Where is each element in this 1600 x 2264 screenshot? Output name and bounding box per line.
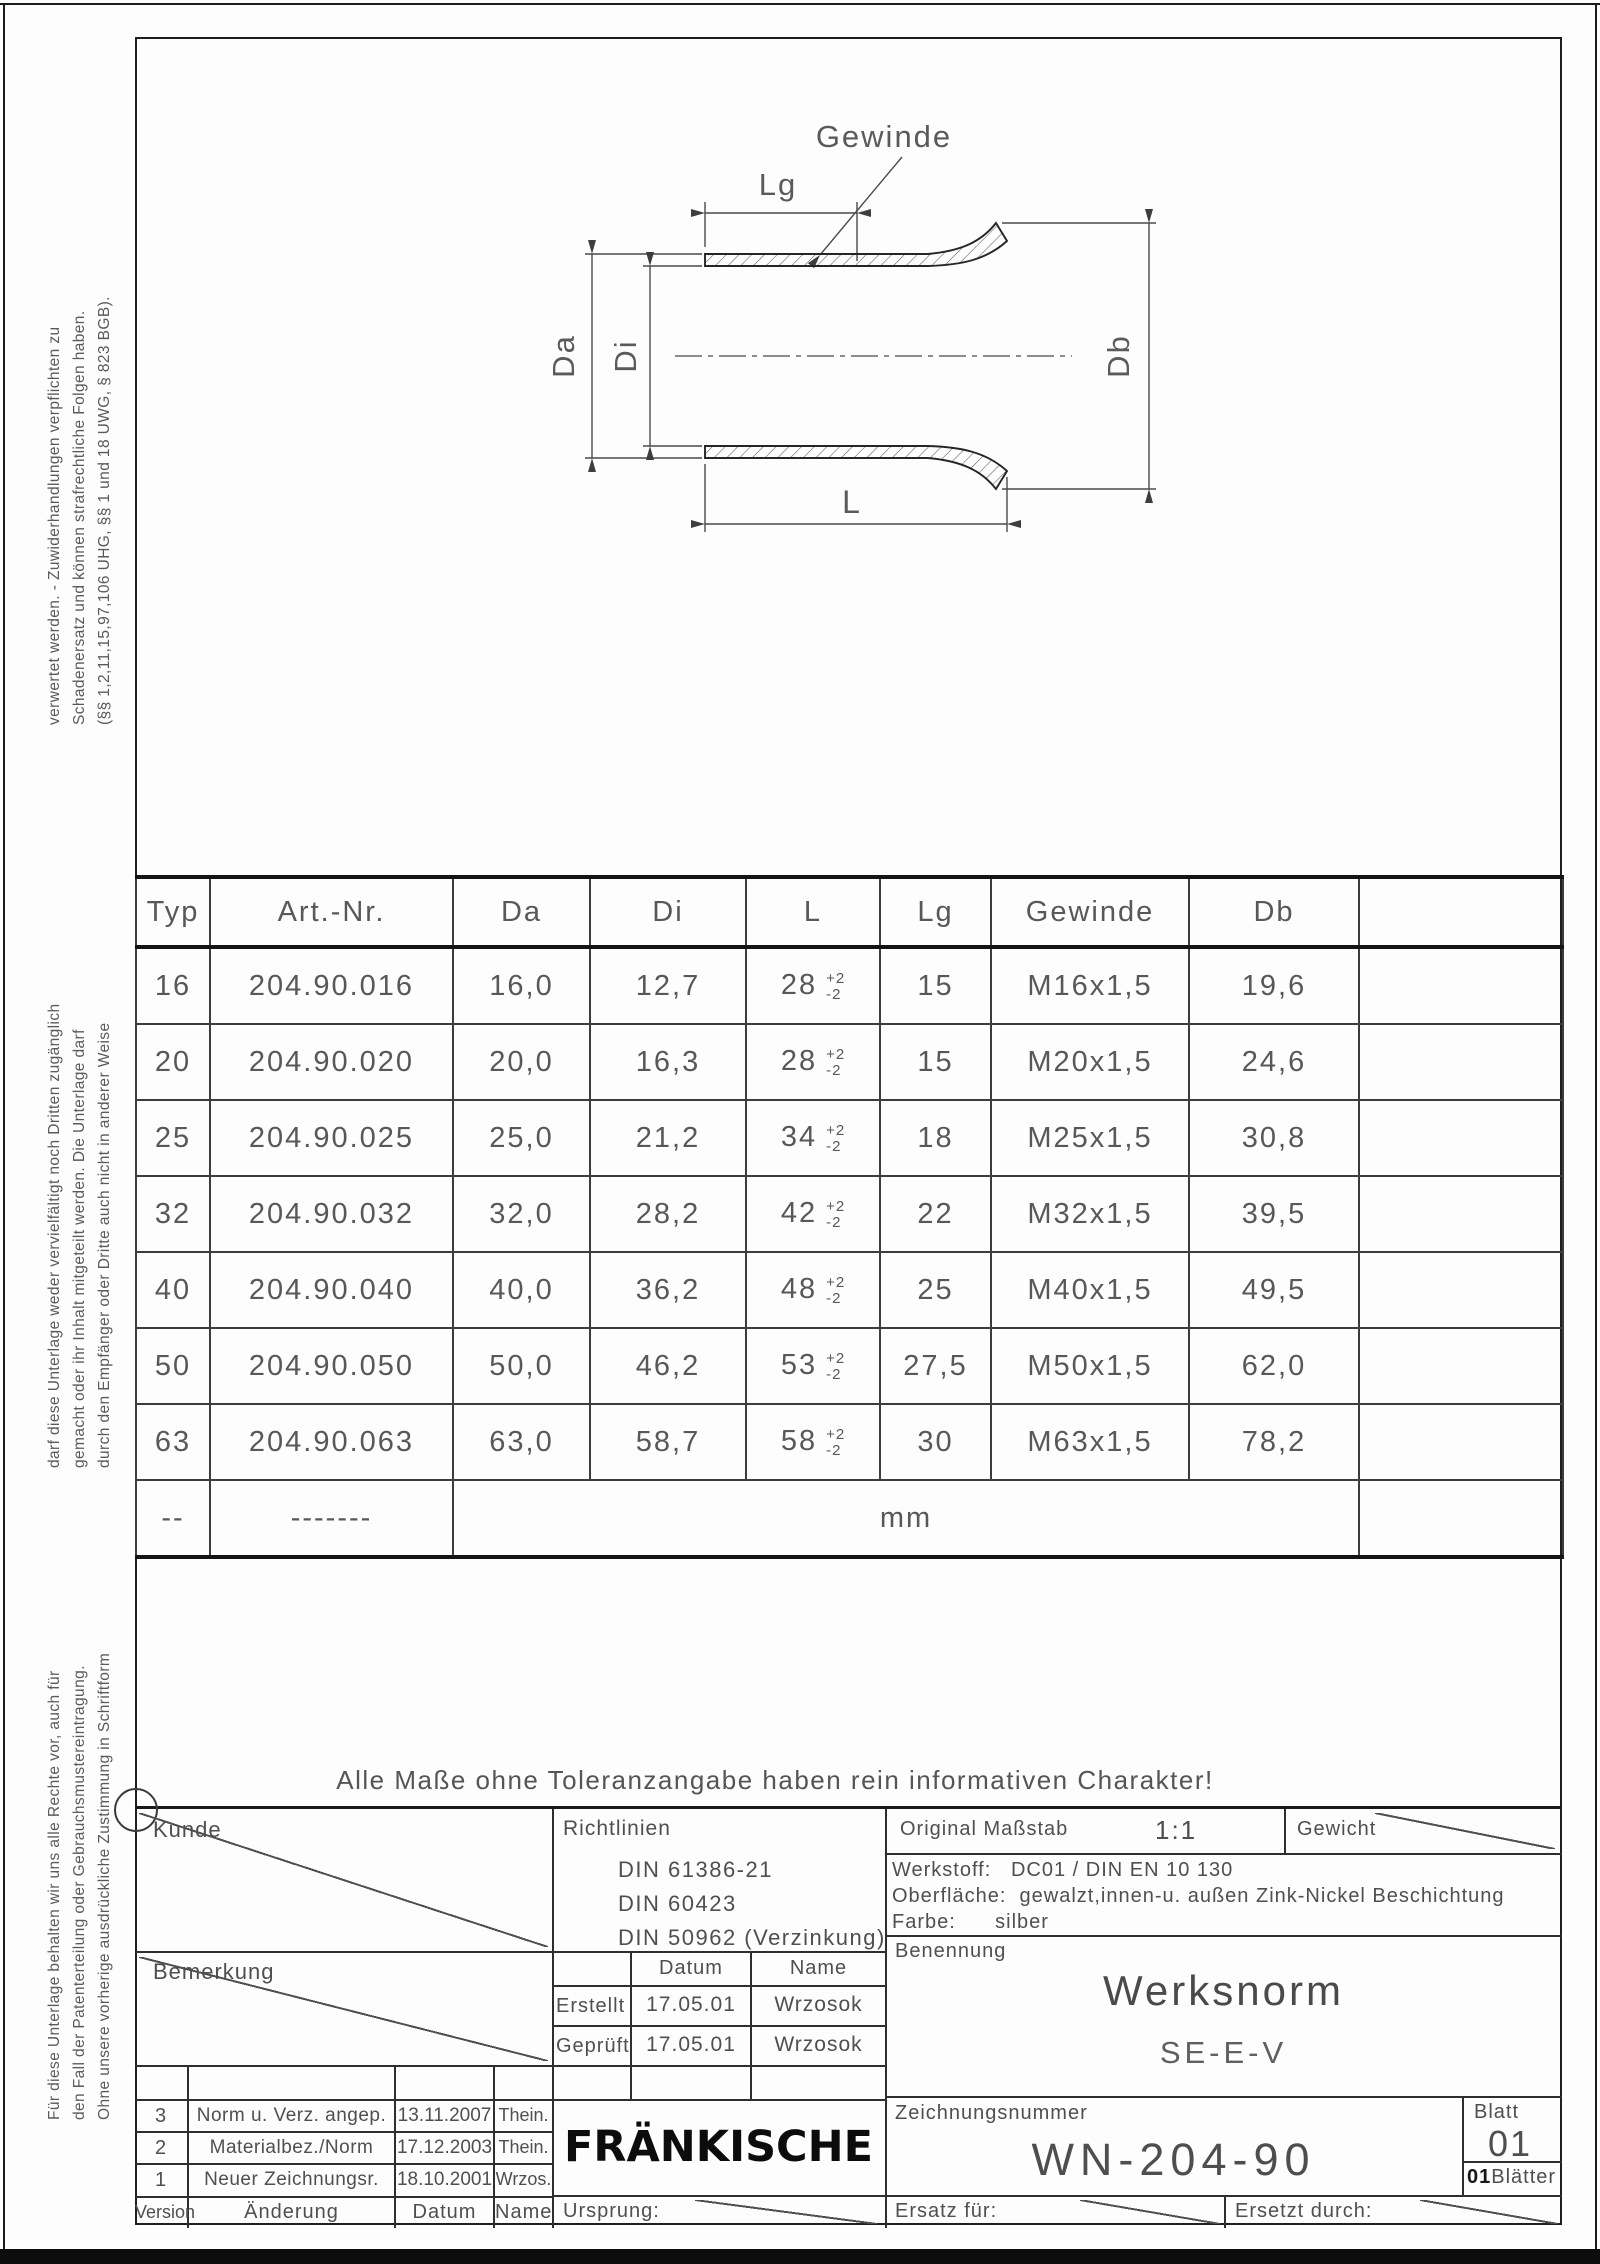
ursprung-void-diagonal	[695, 2200, 877, 2224]
fraenkische-logo: FRÄNKISCHE	[552, 2099, 885, 2195]
ersatz-void-diagonal	[1080, 2200, 1220, 2224]
zeichnungsnummer-label: Zeichnungsnummer	[895, 2102, 1088, 2125]
tolerance-notice: Alle Maße ohne Toleranzangabe haben rein…	[300, 1765, 1250, 1796]
page-border-bottom	[0, 2249, 1600, 2264]
spec-cell: 39,5	[1189, 1176, 1359, 1252]
tolerance-stack: +2-2	[826, 1275, 845, 1307]
tolerance-stack: +2-2	[826, 971, 845, 1003]
spec-cell	[1359, 947, 1563, 1024]
farbe-label: Farbe:	[892, 1911, 956, 1933]
blaetter-label: Blätter	[1491, 2166, 1556, 2188]
spec-cell: M63x1,5	[991, 1404, 1189, 1480]
erstellt-name: Wrzosok	[752, 1993, 885, 2017]
version-row-date: 18.10.2001	[396, 2169, 493, 2191]
spec-column-header: Di	[590, 877, 746, 947]
spec-cell: M20x1,5	[991, 1024, 1189, 1100]
spec-cell: 204.90.032	[210, 1176, 453, 1252]
approval-name-header: Name	[752, 1957, 885, 1980]
richtlinien-label: Richtlinien	[563, 1817, 671, 1841]
tolerance-stack: +2-2	[826, 1427, 845, 1459]
bemerkung-label: Bemerkung	[153, 1959, 275, 1985]
spec-cell	[1359, 1252, 1563, 1328]
ersetzt-void-diagonal	[1420, 2200, 1558, 2224]
di-label: Di	[608, 339, 643, 372]
benennung-title: Werksnorm	[885, 1967, 1562, 2015]
l-label: L	[842, 484, 862, 520]
geprueft-datum: 17.05.01	[632, 2033, 750, 2057]
spec-cell: 16,0	[453, 947, 590, 1024]
spec-unit-row: ---------mm	[136, 1480, 1563, 1557]
spec-row: 16204.90.01616,012,728+2-215M16x1,519,6	[136, 947, 1563, 1024]
spec-cell: 28+2-2	[746, 1024, 880, 1100]
masstab-label: Original Maßstab	[900, 1818, 1068, 1841]
spec-cell: 204.90.016	[210, 947, 453, 1024]
spec-cell: 58+2-2	[746, 1404, 880, 1480]
werkstoff-row: Werkstoff: DC01 / DIN EN 10 130	[892, 1859, 1233, 1882]
spec-cell: M50x1,5	[991, 1328, 1189, 1404]
spec-cell: 34+2-2	[746, 1100, 880, 1176]
spec-cell: 30,8	[1189, 1100, 1359, 1176]
benennung-subtitle: SE-E-V	[885, 2035, 1562, 2071]
spec-cell: M32x1,5	[991, 1176, 1189, 1252]
dimension-table-body: 16204.90.01616,012,728+2-215M16x1,519,62…	[136, 947, 1563, 1557]
spec-cell: 63,0	[453, 1404, 590, 1480]
richtlinie-din: DIN 60423	[618, 1887, 886, 1921]
farbe-value: silber	[995, 1911, 1049, 1933]
legal-line: gemacht oder ihr Inhalt mitgeteilt werde…	[67, 856, 92, 1468]
dimension-table-header: TypArt.-Nr.DaDiLLgGewindeDb	[136, 877, 1563, 947]
spec-cell: 32	[136, 1176, 210, 1252]
spec-row: 25204.90.02525,021,234+2-218M25x1,530,8	[136, 1100, 1563, 1176]
lg-label: Lg	[759, 167, 797, 202]
spec-cell	[1359, 1176, 1563, 1252]
name-header: Name	[495, 2201, 552, 2224]
part-wall-bottom	[705, 446, 1007, 489]
version-row-number: 2	[135, 2137, 187, 2160]
page-border-top	[0, 3, 1600, 5]
legal-text-block-bottom: Für diese Unterlage behalten wir uns all…	[42, 1494, 122, 2120]
ursprung-label: Ursprung:	[563, 2200, 660, 2223]
part-cross-section-drawing: Gewinde Lg Da Di Db L	[440, 95, 1250, 585]
version-row-change: Neuer Zeichnungsr.	[189, 2169, 394, 2191]
version-row-date: 17.12.2003	[396, 2137, 493, 2159]
gewicht-label: Gewicht	[1297, 1818, 1376, 1841]
ersetzt-label: Ersetzt durch:	[1235, 2200, 1372, 2223]
spec-cell: 204.90.063	[210, 1404, 453, 1480]
geprueft-label: Geprüft	[556, 2035, 630, 2058]
approval-datum-header: Datum	[632, 1957, 750, 1980]
spec-cell: 28+2-2	[746, 947, 880, 1024]
spec-cell: 204.90.040	[210, 1252, 453, 1328]
spec-cell: 50	[136, 1328, 210, 1404]
version-header: Version	[135, 2202, 187, 2223]
tolerance-stack: +2-2	[826, 1199, 845, 1231]
version-row-date: 13.11.2007	[396, 2105, 493, 2127]
blaetter-row: 01Blätter	[1467, 2166, 1556, 2189]
spec-cell: 63	[136, 1404, 210, 1480]
dimension-lines	[585, 157, 1156, 532]
spec-cell: 25	[136, 1100, 210, 1176]
spec-cell: 15	[880, 1024, 991, 1100]
spec-row: 32204.90.03232,028,242+2-222M32x1,539,5	[136, 1176, 1563, 1252]
spec-row: 63204.90.06363,058,758+2-230M63x1,578,2	[136, 1404, 1563, 1480]
geprueft-name: Wrzosok	[752, 2033, 885, 2057]
spec-cell: 16	[136, 947, 210, 1024]
spec-cell: 27,5	[880, 1328, 991, 1404]
blatt-value: 01	[1462, 2123, 1558, 2165]
richtlinien-list: DIN 61386-21 DIN 60423 DIN 50962 (Verzin…	[618, 1853, 886, 1955]
richtlinie-din: DIN 50962 (Verzinkung)	[618, 1921, 886, 1955]
title-block: Kunde Richtlinien DIN 61386-21 DIN 60423…	[135, 1806, 1562, 2225]
gewinde-leader-line	[820, 157, 902, 255]
spec-cell: 19,6	[1189, 947, 1359, 1024]
legal-line: den Fall der Patenterteilung oder Gebrau…	[67, 1494, 92, 2120]
farbe-row: Farbe: silber	[892, 1911, 1049, 1934]
spec-column-header: Da	[453, 877, 590, 947]
spec-cell: M16x1,5	[991, 947, 1189, 1024]
spec-cell: 20,0	[453, 1024, 590, 1100]
aenderung-header: Änderung	[189, 2201, 394, 2224]
spec-column-header: Db	[1189, 877, 1359, 947]
spec-cell: 12,7	[590, 947, 746, 1024]
spec-cell: 204.90.050	[210, 1328, 453, 1404]
legal-line: durch den Empfänger oder Dritte auch nic…	[92, 856, 117, 1468]
legal-line: verwertet werden. - Zuwiderhandlungen ve…	[42, 228, 67, 725]
spec-column-header: L	[746, 877, 880, 947]
spec-column-header: Gewinde	[991, 877, 1189, 947]
spec-column-header: Lg	[880, 877, 991, 947]
spec-cell: 36,2	[590, 1252, 746, 1328]
spec-cell: M25x1,5	[991, 1100, 1189, 1176]
legal-line: (§§ 1,2,11,15,97,106 UHG, §§ 1 und 18 UW…	[92, 228, 117, 725]
legal-text-block-middle: darf diese Unterlage weder vervielfältig…	[42, 856, 122, 1468]
gewinde-label: Gewinde	[816, 119, 952, 154]
spec-cell: 20	[136, 1024, 210, 1100]
spec-cell: 53+2-2	[746, 1328, 880, 1404]
version-row-name: Thein.	[495, 2105, 552, 2126]
werkstoff-label: Werkstoff:	[892, 1859, 991, 1881]
legal-text-block-top: verwertet werden. - Zuwiderhandlungen ve…	[42, 228, 122, 725]
spec-column-header: Typ	[136, 877, 210, 947]
spec-cell: 204.90.025	[210, 1100, 453, 1176]
spec-cell: -------	[210, 1480, 453, 1557]
spec-unit-cell: mm	[453, 1480, 1359, 1557]
spec-cell: 50,0	[453, 1328, 590, 1404]
legal-line: Für diese Unterlage behalten wir uns all…	[42, 1494, 67, 2120]
spec-cell: 22	[880, 1176, 991, 1252]
kunde-label: Kunde	[153, 1817, 222, 1843]
blatt-label: Blatt	[1474, 2101, 1519, 2124]
dimension-table: TypArt.-Nr.DaDiLLgGewindeDb 16204.90.016…	[135, 875, 1564, 1559]
spec-cell: 46,2	[590, 1328, 746, 1404]
spec-cell: 40	[136, 1252, 210, 1328]
spec-cell	[1359, 1024, 1563, 1100]
masstab-value: 1:1	[1155, 1815, 1197, 1846]
blaetter-count: 01	[1467, 2166, 1491, 2188]
spec-cell: 204.90.020	[210, 1024, 453, 1100]
spec-cell: 48+2-2	[746, 1252, 880, 1328]
richtlinie-din: DIN 61386-21	[618, 1853, 886, 1887]
da-label: Da	[546, 334, 581, 378]
spec-cell: 30	[880, 1404, 991, 1480]
werkstoff-value: DC01 / DIN EN 10 130	[1011, 1859, 1233, 1881]
version-row-name: Wrzos.	[495, 2169, 552, 2190]
spec-cell: 28,2	[590, 1176, 746, 1252]
spec-cell	[1359, 1100, 1563, 1176]
spec-cell: 78,2	[1189, 1404, 1359, 1480]
spec-column-header: Art.-Nr.	[210, 877, 453, 947]
spec-cell: 21,2	[590, 1100, 746, 1176]
drawing-sheet: verwertet werden. - Zuwiderhandlungen ve…	[0, 0, 1600, 2264]
version-row-number: 3	[135, 2105, 187, 2128]
oberflaeche-label: Oberfläche:	[892, 1885, 1006, 1907]
spec-cell: M40x1,5	[991, 1252, 1189, 1328]
spec-cell: 49,5	[1189, 1252, 1359, 1328]
spec-cell: 15	[880, 947, 991, 1024]
spec-cell: --	[136, 1480, 210, 1557]
spec-cell	[1359, 1404, 1563, 1480]
benennung-label: Benennung	[895, 1940, 1006, 1963]
spec-cell: 24,6	[1189, 1024, 1359, 1100]
part-wall-top	[705, 223, 1007, 266]
datum-header: Datum	[396, 2201, 493, 2224]
oberflaeche-row: Oberfläche: gewalzt,innen-u. außen Zink-…	[892, 1885, 1505, 1908]
tolerance-stack: +2-2	[826, 1351, 845, 1383]
spec-column-header	[1359, 877, 1563, 947]
version-row-name: Thein.	[495, 2137, 552, 2158]
zeichnungsnummer-value: WN-204-90	[885, 2134, 1462, 2186]
db-label: Db	[1101, 334, 1136, 378]
spec-row: 20204.90.02020,016,328+2-215M20x1,524,6	[136, 1024, 1563, 1100]
oberflaeche-value: gewalzt,innen-u. außen Zink-Nickel Besch…	[1020, 1885, 1505, 1907]
spec-cell	[1359, 1328, 1563, 1404]
page-border-left	[3, 3, 5, 2251]
spec-cell: 40,0	[453, 1252, 590, 1328]
spec-cell: 16,3	[590, 1024, 746, 1100]
version-row-number: 1	[135, 2169, 187, 2192]
erstellt-datum: 17.05.01	[632, 1993, 750, 2017]
legal-line: Schadenersatz und können strafrechtliche…	[67, 228, 92, 725]
spec-cell: 18	[880, 1100, 991, 1176]
gewicht-void-diagonal	[1375, 1813, 1555, 1849]
page-border-right	[1595, 3, 1597, 2251]
spec-cell: 42+2-2	[746, 1176, 880, 1252]
legal-line: darf diese Unterlage weder vervielfältig…	[42, 856, 67, 1468]
tolerance-stack: +2-2	[826, 1047, 845, 1079]
version-row-change: Norm u. Verz. angep.	[189, 2105, 394, 2127]
spec-cell	[1359, 1480, 1563, 1557]
spec-cell: 32,0	[453, 1176, 590, 1252]
spec-row: 50204.90.05050,046,253+2-227,5M50x1,562,…	[136, 1328, 1563, 1404]
spec-cell: 25,0	[453, 1100, 590, 1176]
tolerance-stack: +2-2	[826, 1123, 845, 1155]
spec-cell: 25	[880, 1252, 991, 1328]
spec-row: 40204.90.04040,036,248+2-225M40x1,549,5	[136, 1252, 1563, 1328]
spec-cell: 62,0	[1189, 1328, 1359, 1404]
ersatz-label: Ersatz für:	[895, 2200, 997, 2223]
erstellt-label: Erstellt	[556, 1995, 625, 2018]
spec-cell: 58,7	[590, 1404, 746, 1480]
version-row-change: Materialbez./Norm	[189, 2137, 394, 2159]
